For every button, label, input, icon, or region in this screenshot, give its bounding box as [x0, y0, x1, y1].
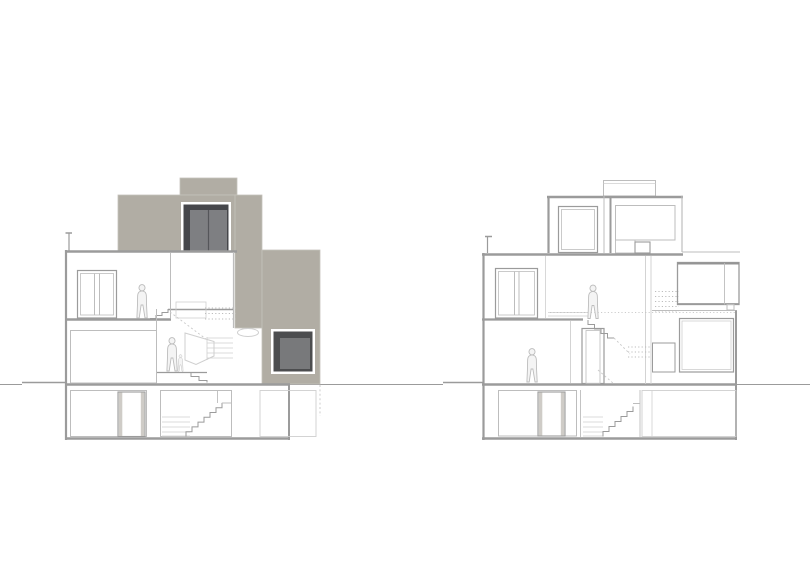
stair-steps	[186, 403, 222, 437]
right-topfloor-step-b	[635, 242, 650, 253]
left-steps-floor2-to-landing	[150, 309, 168, 319]
stair-steps	[603, 407, 633, 437]
left-building-section	[65, 178, 320, 440]
left-basement-door	[118, 392, 145, 437]
window-outer-frame	[680, 319, 734, 373]
window-mullions	[515, 272, 520, 316]
right-roof-penthouse	[604, 181, 656, 197]
right-wing-big-window	[680, 319, 734, 373]
window-outer-frame	[496, 269, 538, 319]
right-window-topfloor	[559, 207, 598, 253]
child-figure-left	[178, 355, 183, 372]
door-frame	[582, 329, 604, 384]
right-stair-flight-dashed	[614, 338, 630, 354]
right-section-door	[582, 329, 604, 384]
left-ground-room	[71, 331, 157, 384]
window-outer-frame	[78, 271, 117, 319]
human-figure-left-upper	[137, 285, 147, 318]
left-grey-column-mass	[235, 195, 262, 328]
right-lower-flight-dashed	[598, 370, 614, 384]
right-landing-edge-lines	[548, 313, 588, 317]
left-dark-opening-wing	[271, 329, 315, 374]
stair-landing	[218, 391, 232, 404]
right-basement-stairs	[581, 390, 641, 437]
wing-block-outline	[678, 263, 740, 305]
drawing-canvas	[0, 0, 810, 570]
right-railing-hatch-lower	[628, 347, 650, 357]
window-inner-frame	[499, 272, 535, 316]
section-drawing	[0, 0, 810, 570]
left-basement-room	[71, 391, 147, 437]
right-window-floor2	[496, 269, 538, 319]
left-basement-stairs	[162, 391, 231, 437]
wing-window-panel	[280, 338, 310, 369]
left-dark-opening-upper	[181, 202, 231, 253]
stair-room-walls	[581, 390, 641, 437]
right-wing-upper-block	[678, 263, 740, 311]
left-steps-landing-to-ground	[183, 373, 207, 383]
right-topfloor-step-a	[616, 240, 636, 253]
left-roof-penthouse-mass	[180, 178, 237, 195]
window-inner-frame	[562, 210, 595, 250]
right-wing-small-window	[653, 343, 676, 372]
stair-treads	[583, 417, 603, 436]
window-outer-frame	[559, 207, 598, 253]
right-topfloor-rear-room	[616, 206, 676, 241]
window-inner-frame	[682, 321, 731, 370]
washbasin	[238, 329, 259, 337]
right-railing-hatch-upper	[655, 292, 679, 312]
human-figure-right-upper	[588, 285, 598, 318]
door-jamb-left	[539, 393, 543, 436]
wing-block-tab	[727, 305, 734, 311]
human-figure-left-landing	[167, 338, 177, 371]
right-basement-rear-room	[642, 391, 736, 437]
window-inner-frame	[81, 274, 114, 316]
left-window-floor2	[78, 271, 117, 319]
left-basement-stair-room	[161, 391, 232, 437]
door-jamb-right	[561, 393, 565, 436]
human-figure-right-ground	[527, 349, 537, 382]
door-leaf	[586, 331, 600, 384]
left-stair-flight-dashed	[170, 312, 206, 339]
right-stair-shaft-walls	[646, 256, 652, 384]
door-jamb-right	[141, 393, 145, 437]
right-basement-door	[538, 392, 565, 436]
right-building-section	[482, 181, 740, 441]
door-jamb-left	[119, 393, 123, 437]
window-mullions	[95, 274, 100, 316]
